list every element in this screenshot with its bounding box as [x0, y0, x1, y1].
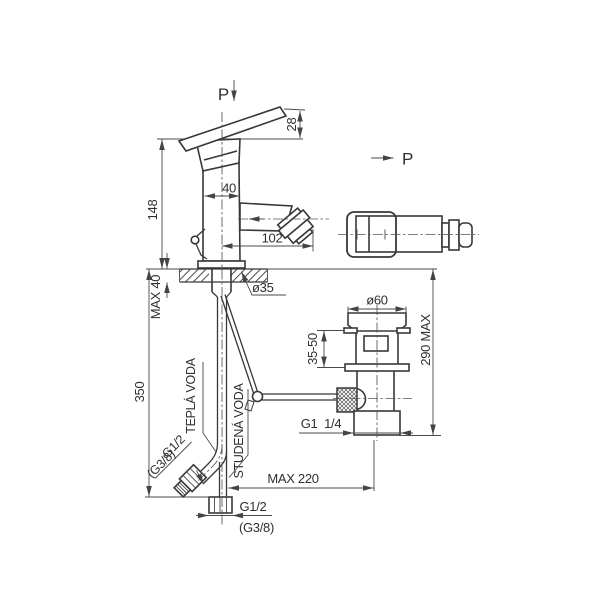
hot-water-label: TEPLÁ VODA [183, 357, 198, 433]
dim-waste-flange-label: ø60 [366, 293, 388, 308]
base-flange [198, 261, 245, 268]
dim-supply-length-label: 350 [132, 382, 147, 403]
drain-assembly [337, 313, 410, 435]
cold-pipe-fitting [209, 497, 232, 513]
cold-water-label: STUDENÁ VODA [231, 383, 246, 479]
technical-drawing-page: P P 28 148 MAX 40 40 102 ø35 350 TEPLÁ V… [0, 0, 600, 600]
dim-spout-reach-label: 102 [262, 231, 283, 246]
hot-pipe-fitting [172, 465, 206, 499]
dim-waste-range-label: 35-50 [305, 333, 320, 365]
dim-body-width-label: 40 [222, 181, 236, 196]
knurled-nut [337, 388, 357, 412]
deck-section [146, 269, 437, 282]
waste-thread-label: G1 1/4 [301, 416, 342, 431]
pressure-label-side: P [218, 85, 229, 104]
faucet-dimension-drawing: P P 28 148 MAX 40 40 102 ø35 350 TEPLÁ V… [0, 0, 600, 600]
dim-height-label: 148 [145, 200, 160, 221]
top-view-aerator [442, 223, 449, 247]
cold-thread-label: G1/2 [240, 499, 267, 514]
dim-deck-thickness-label: MAX 40 [148, 275, 163, 320]
pressure-label-top: P [402, 150, 413, 169]
deck-hatch-left [180, 269, 210, 282]
dim-waste-offset-label: MAX 220 [267, 471, 318, 486]
dim-lever-rise-label: 28 [284, 118, 299, 132]
dimensions: P P 28 148 MAX 40 40 102 ø35 350 TEPLÁ V… [132, 80, 441, 535]
overflow-window [364, 336, 388, 351]
dim-waste-height-label: 290 MAX [418, 314, 433, 366]
dim-mount-hole-label: ø35 [252, 280, 274, 295]
linkage-ball-joint [253, 392, 263, 402]
cold-thread-alt-label: (G3/8) [239, 520, 274, 535]
